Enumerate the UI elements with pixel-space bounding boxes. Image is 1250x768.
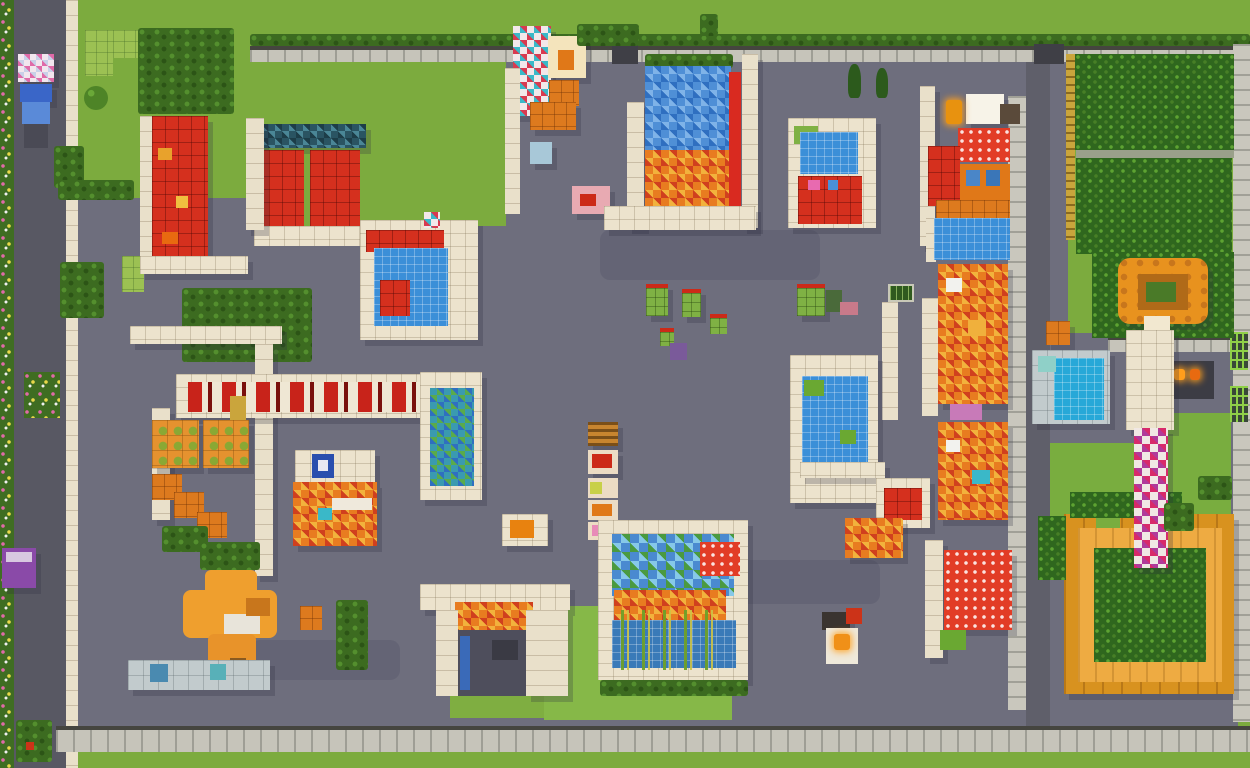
wall-v7: [505, 68, 520, 214]
orangetree-gap: [224, 614, 260, 634]
hedgerow-west: [58, 180, 134, 200]
gardenhall-plants: [600, 680, 748, 696]
stall-pink-inner: [580, 194, 596, 206]
pool1-redblock: [380, 280, 410, 316]
wall-v6: [882, 302, 898, 420]
stallcol-3-inner: [590, 482, 602, 494]
crate-pink: [840, 302, 858, 315]
bottom-bush: [16, 720, 52, 762]
market-awning: [958, 128, 1010, 162]
field-fence: [1066, 54, 1075, 240]
hall-red-strip: [729, 72, 741, 226]
stall-se-green: [940, 630, 966, 650]
hall-wall-bottom: [604, 206, 756, 230]
bush-block: [60, 262, 104, 318]
bluesign-glyph: [318, 460, 328, 471]
truck-cab: [20, 84, 52, 102]
red-building-wall: [140, 116, 152, 266]
crops-left-paddock: [1038, 516, 1066, 580]
gardenhall-reddot: [700, 542, 740, 576]
market-crates: [936, 200, 1010, 220]
bluesign-acc-2: [332, 498, 372, 510]
red-crate-south: [846, 608, 862, 624]
white-stall-inner: [510, 520, 534, 538]
crate-green-5: [797, 284, 825, 316]
bush-column: [336, 600, 368, 670]
bush-lawn-1: [1198, 476, 1232, 500]
plaza-shadow-1: [600, 230, 820, 280]
red-building: [152, 116, 208, 266]
wall-h2: [130, 326, 282, 344]
wall-h1: [140, 256, 248, 274]
red-building-acc-1: [158, 148, 172, 160]
plaza-shadow-3: [250, 640, 400, 680]
orangetree-teal-2: [210, 664, 226, 680]
hedge-top-a: [577, 24, 639, 46]
orange-plot-b: [203, 420, 249, 468]
hbuilding-crate: [492, 640, 518, 660]
bushes-b: [200, 542, 260, 570]
stall-s1-red: [884, 488, 922, 520]
gate-east-2: [1230, 386, 1248, 422]
red-building-acc-3: [162, 232, 178, 244]
stall-red-b: [310, 150, 360, 228]
orange-crate-east: [1046, 321, 1070, 345]
gate-top-1: [612, 44, 638, 64]
pool4-green-2: [840, 430, 856, 444]
stall-teal-roof: [254, 124, 366, 148]
market-lamp: [946, 100, 962, 124]
pink-stall-strip: [1134, 428, 1168, 568]
stall-base: [254, 226, 366, 246]
cyan-bits: [1038, 356, 1056, 372]
orange-crate-b: [530, 102, 576, 130]
field-2: [1076, 158, 1232, 254]
aquarium-mosaic: [430, 388, 474, 486]
field-1: [1075, 54, 1234, 150]
market-col-pink: [950, 404, 982, 420]
red-building-acc-2: [176, 196, 188, 208]
market-window-1: [966, 170, 980, 186]
white-tower: [1126, 330, 1174, 430]
field-path: [1076, 150, 1234, 158]
stall-s2: [845, 518, 903, 558]
flower-cluster: [24, 372, 60, 418]
cyan-pool: [1054, 358, 1104, 420]
pool2-acc-2: [828, 180, 838, 190]
market-col-acc-1: [946, 278, 962, 292]
gardenhall-sprigs: [616, 610, 726, 670]
gate-top-2: [1034, 44, 1064, 64]
hedge-field-a: [138, 28, 234, 114]
platform-lamp-2: [1190, 369, 1200, 380]
hall-wall-right: [742, 54, 758, 228]
crop-plot-b: [113, 30, 141, 58]
wall-h5: [800, 462, 885, 478]
pool2-water: [800, 132, 858, 174]
stall-se-red: [944, 550, 1012, 630]
hedge-field-b: [182, 288, 312, 362]
wall-v1: [246, 118, 264, 230]
panel-green-1: [888, 284, 914, 302]
crate-green-1: [646, 284, 668, 316]
bottom-bush-berry: [26, 742, 34, 750]
market-sign: [966, 94, 1004, 124]
pine-b: [876, 68, 888, 98]
market-col-acc-2: [968, 320, 986, 336]
orange-plot-a: [152, 420, 199, 468]
mushroom-core-green: [1146, 282, 1176, 302]
bluesign-body: [293, 482, 377, 546]
lampstall-lamp: [834, 634, 850, 650]
bush-lawn-2: [1164, 503, 1194, 531]
orange-crate-sw: [300, 606, 322, 630]
left-road-wall: [66, 0, 78, 768]
truck-trailer: [24, 124, 48, 148]
crop-plot-a: [85, 30, 113, 76]
top-hedge-strip: [250, 34, 1250, 46]
crate-green-2: [682, 289, 701, 317]
crate-purple: [670, 343, 687, 360]
market-red-left: [928, 146, 960, 206]
hedge-cube: [700, 14, 718, 36]
hbuilding-awning: [455, 602, 533, 632]
van-purple-top: [6, 552, 32, 562]
hall-mosaic-blue: [645, 66, 731, 150]
van-pink: [18, 54, 54, 82]
stallcol-2-inner: [592, 454, 612, 468]
right-wall: [1233, 44, 1250, 722]
platform-lamp-1: [1174, 369, 1185, 380]
stallcol-4-inner: [592, 504, 612, 516]
pine-a: [848, 64, 861, 98]
truck-body: [22, 102, 50, 124]
pool1-toy: [424, 212, 440, 228]
stall-blue-small: [530, 142, 552, 164]
pool3-water: [934, 218, 1010, 260]
pool4-green-1: [804, 380, 824, 396]
round-bush: [84, 86, 108, 110]
bluesign-acc-1: [318, 508, 332, 520]
hbuilding-bluestrip: [460, 636, 470, 690]
market-window-2: [986, 170, 1000, 186]
arcade-stalls: [188, 382, 456, 412]
hbuilding-leftcol: [436, 610, 458, 696]
market-col-wall: [922, 298, 938, 416]
bottom-wall: [56, 726, 1250, 752]
orangetree-teal-1: [150, 664, 168, 682]
bluesign-base: [295, 450, 375, 482]
map-viewport[interactable]: [0, 0, 1250, 768]
stallcol-1: [588, 422, 618, 446]
left-flower-hedge: [0, 0, 14, 768]
crate-green-4: [710, 314, 727, 334]
entrance-door: [558, 50, 574, 70]
market-darkbox: [1000, 104, 1020, 124]
pool2-acc-1: [808, 180, 820, 190]
hbuilding-rightcol: [526, 610, 568, 696]
orangetree-dark: [246, 598, 270, 616]
market-col-acc-3: [946, 440, 960, 452]
market-col-acc-4: [972, 470, 990, 484]
